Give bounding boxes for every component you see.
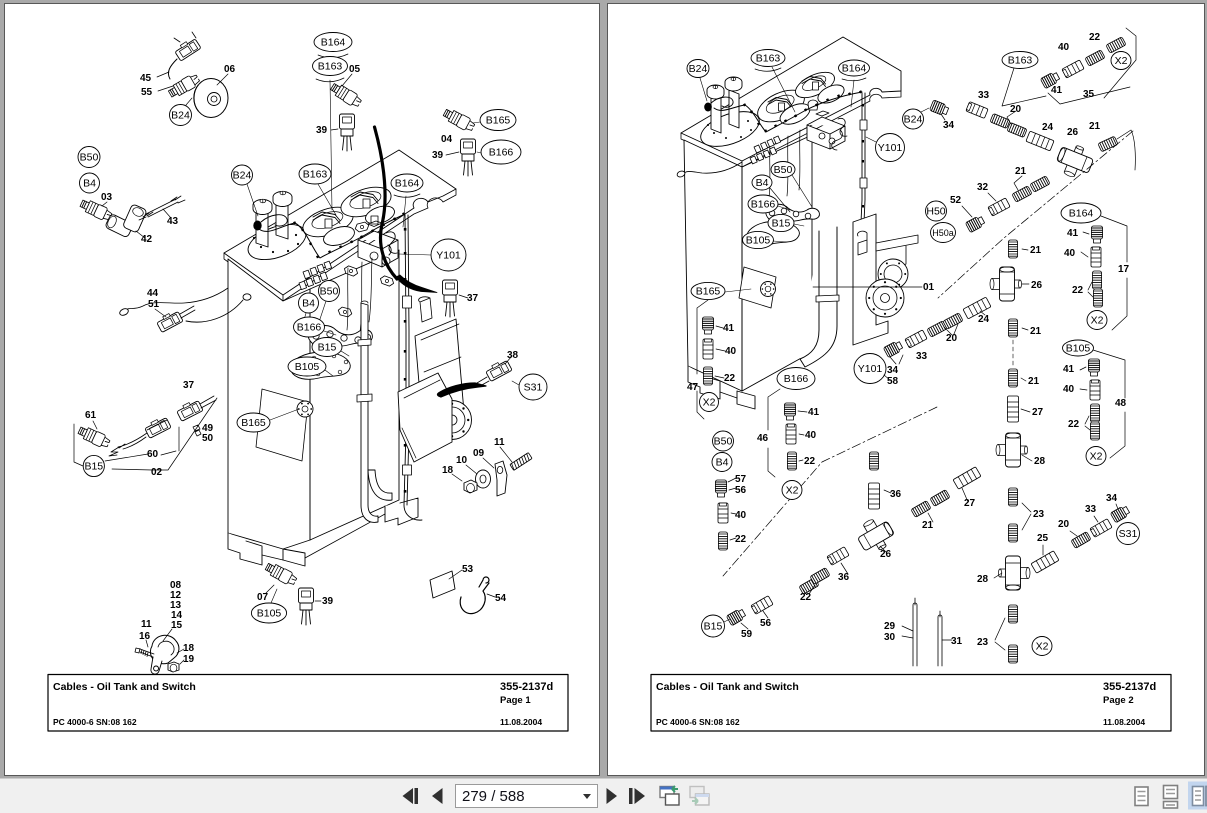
svg-text:26: 26 [1067, 127, 1079, 138]
svg-text:B50: B50 [320, 286, 339, 298]
svg-text:B166: B166 [751, 199, 776, 211]
svg-text:B4: B4 [302, 298, 315, 310]
svg-text:Page 1: Page 1 [500, 695, 531, 706]
svg-text:41: 41 [1067, 228, 1079, 239]
svg-text:Y101: Y101 [858, 363, 883, 375]
svg-text:B164: B164 [842, 63, 867, 75]
svg-text:28: 28 [977, 574, 989, 585]
svg-text:B15: B15 [704, 621, 723, 633]
svg-text:Y101: Y101 [436, 250, 461, 262]
svg-text:20: 20 [1058, 519, 1070, 530]
svg-text:61: 61 [85, 410, 97, 421]
svg-text:X2: X2 [786, 485, 799, 497]
svg-text:25: 25 [1037, 533, 1049, 544]
svg-text:02: 02 [151, 467, 163, 478]
svg-text:24: 24 [1042, 122, 1054, 133]
svg-text:22: 22 [800, 592, 812, 603]
svg-text:01: 01 [923, 282, 935, 293]
svg-text:41: 41 [1051, 85, 1063, 96]
svg-text:Cables - Oil Tank and Switch: Cables - Oil Tank and Switch [53, 681, 196, 693]
svg-text:B105: B105 [257, 608, 282, 620]
svg-text:X2: X2 [703, 397, 716, 409]
svg-text:15: 15 [171, 620, 183, 631]
svg-text:34: 34 [943, 120, 955, 131]
svg-text:B50: B50 [714, 436, 733, 448]
svg-text:55: 55 [141, 87, 153, 98]
svg-text:B105: B105 [295, 361, 320, 373]
svg-text:18: 18 [183, 643, 195, 654]
svg-text:33: 33 [916, 351, 928, 362]
svg-text:11.08.2004: 11.08.2004 [1103, 717, 1145, 727]
svg-text:56: 56 [760, 618, 772, 629]
svg-text:B163: B163 [303, 169, 328, 181]
svg-text:B15: B15 [772, 218, 791, 230]
svg-text:26: 26 [1031, 280, 1043, 291]
svg-text:B163: B163 [318, 61, 343, 73]
svg-text:11.08.2004: 11.08.2004 [500, 717, 542, 727]
svg-text:B24: B24 [689, 63, 708, 75]
svg-text:43: 43 [167, 216, 179, 227]
svg-text:33: 33 [1085, 504, 1097, 515]
svg-text:PC 4000-6 SN:08 162: PC 4000-6 SN:08 162 [53, 717, 137, 727]
svg-text:Y101: Y101 [878, 142, 903, 154]
svg-text:59: 59 [741, 629, 753, 640]
svg-text:22: 22 [1072, 285, 1084, 296]
svg-text:41: 41 [1063, 364, 1075, 375]
svg-text:22: 22 [1089, 32, 1101, 43]
svg-text:33: 33 [978, 90, 990, 101]
svg-text:PC 4000-6 SN:08 162: PC 4000-6 SN:08 162 [656, 717, 740, 727]
svg-text:B24: B24 [171, 110, 190, 122]
svg-text:58: 58 [887, 376, 899, 387]
svg-text:B4: B4 [83, 178, 96, 190]
svg-text:H50a: H50a [932, 228, 954, 238]
svg-text:B166: B166 [784, 373, 809, 385]
svg-text:03: 03 [101, 192, 113, 203]
svg-text:05: 05 [349, 64, 361, 75]
svg-text:34: 34 [1106, 493, 1118, 504]
svg-text:B4: B4 [756, 177, 769, 189]
svg-text:20: 20 [946, 333, 958, 344]
svg-text:32: 32 [977, 182, 989, 193]
svg-text:39: 39 [316, 125, 328, 136]
svg-text:40: 40 [1063, 384, 1075, 395]
svg-text:355-2137d: 355-2137d [1103, 681, 1156, 693]
svg-text:B165: B165 [696, 286, 721, 298]
svg-text:40: 40 [725, 346, 737, 357]
svg-text:B163: B163 [1008, 55, 1033, 67]
svg-text:45: 45 [140, 73, 152, 84]
svg-text:04: 04 [441, 134, 453, 145]
svg-text:27: 27 [1032, 407, 1044, 418]
svg-text:21: 21 [1030, 326, 1042, 337]
svg-text:B105: B105 [1066, 343, 1091, 355]
svg-text:B165: B165 [241, 417, 266, 429]
svg-text:23: 23 [977, 637, 989, 648]
svg-text:X2: X2 [1036, 641, 1049, 653]
svg-text:41: 41 [723, 323, 735, 334]
svg-text:41: 41 [808, 407, 820, 418]
svg-text:56: 56 [735, 485, 747, 496]
svg-text:26: 26 [880, 549, 892, 560]
svg-text:B50: B50 [80, 152, 99, 164]
svg-text:22: 22 [735, 534, 747, 545]
svg-text:X2: X2 [1115, 55, 1128, 67]
svg-text:35: 35 [1083, 89, 1095, 100]
svg-text:22: 22 [804, 456, 816, 467]
svg-text:18: 18 [442, 465, 454, 476]
svg-text:H50: H50 [926, 206, 945, 218]
svg-text:B15: B15 [318, 342, 337, 354]
svg-text:57: 57 [735, 474, 747, 485]
svg-text:09: 09 [473, 448, 485, 459]
svg-text:50: 50 [202, 433, 214, 444]
svg-text:B166: B166 [489, 147, 514, 159]
svg-text:B4: B4 [716, 457, 729, 469]
svg-text:23: 23 [1033, 509, 1045, 520]
svg-text:37: 37 [183, 380, 195, 391]
svg-text:20: 20 [1010, 104, 1022, 115]
svg-text:21: 21 [1028, 376, 1040, 387]
svg-text:B164: B164 [1069, 208, 1094, 220]
svg-text:Page 2: Page 2 [1103, 695, 1134, 706]
svg-text:40: 40 [1064, 248, 1076, 259]
svg-text:279 / 588: 279 / 588 [462, 788, 525, 805]
svg-text:B24: B24 [904, 114, 923, 126]
svg-text:48: 48 [1115, 398, 1127, 409]
svg-text:51: 51 [148, 299, 160, 310]
svg-text:X2: X2 [1090, 451, 1103, 463]
svg-text:355-2137d: 355-2137d [500, 681, 553, 693]
svg-text:21: 21 [1030, 245, 1042, 256]
svg-text:21: 21 [1015, 166, 1027, 177]
svg-text:40: 40 [805, 430, 817, 441]
svg-text:B165: B165 [486, 115, 511, 127]
svg-text:29: 29 [884, 621, 896, 632]
svg-text:B163: B163 [756, 53, 781, 65]
svg-text:21: 21 [922, 520, 934, 531]
svg-text:B15: B15 [84, 461, 103, 473]
svg-text:60: 60 [147, 449, 159, 460]
svg-text:06: 06 [224, 64, 236, 75]
svg-text:27: 27 [964, 498, 976, 509]
svg-text:39: 39 [432, 150, 444, 161]
svg-text:10: 10 [456, 455, 468, 466]
svg-text:40: 40 [1058, 42, 1070, 53]
svg-text:30: 30 [884, 632, 896, 643]
svg-text:S31: S31 [1119, 528, 1138, 540]
svg-text:38: 38 [507, 350, 519, 361]
svg-text:Cables - Oil Tank and Switch: Cables - Oil Tank and Switch [656, 681, 799, 693]
svg-text:37: 37 [467, 293, 479, 304]
svg-text:B164: B164 [395, 178, 420, 190]
svg-text:22: 22 [1068, 419, 1080, 430]
svg-text:B24: B24 [233, 170, 252, 182]
svg-text:19: 19 [183, 654, 195, 665]
svg-text:X2: X2 [1091, 315, 1104, 327]
svg-text:46: 46 [757, 433, 769, 444]
svg-text:36: 36 [890, 489, 902, 500]
svg-text:B166: B166 [297, 322, 322, 334]
svg-text:S31: S31 [524, 382, 543, 394]
svg-text:21: 21 [1089, 121, 1101, 132]
svg-text:11: 11 [494, 437, 505, 448]
svg-text:B164: B164 [321, 37, 346, 49]
svg-text:53: 53 [462, 564, 474, 575]
svg-text:B50: B50 [774, 164, 793, 176]
svg-text:07: 07 [257, 592, 269, 603]
svg-text:52: 52 [950, 195, 962, 206]
svg-text:24: 24 [978, 314, 990, 325]
svg-text:17: 17 [1118, 264, 1130, 275]
svg-text:40: 40 [735, 510, 747, 521]
svg-text:54: 54 [495, 593, 507, 604]
svg-text:39: 39 [322, 596, 334, 607]
svg-text:28: 28 [1034, 456, 1046, 467]
svg-text:44: 44 [147, 288, 159, 299]
svg-text:34: 34 [887, 365, 899, 376]
svg-text:47: 47 [687, 382, 699, 393]
svg-text:11: 11 [141, 619, 152, 630]
svg-text:42: 42 [141, 234, 153, 245]
svg-text:31: 31 [951, 636, 963, 647]
svg-text:B105: B105 [746, 235, 771, 247]
svg-text:22: 22 [724, 373, 736, 384]
svg-text:16: 16 [139, 631, 151, 642]
svg-text:36: 36 [838, 572, 850, 583]
